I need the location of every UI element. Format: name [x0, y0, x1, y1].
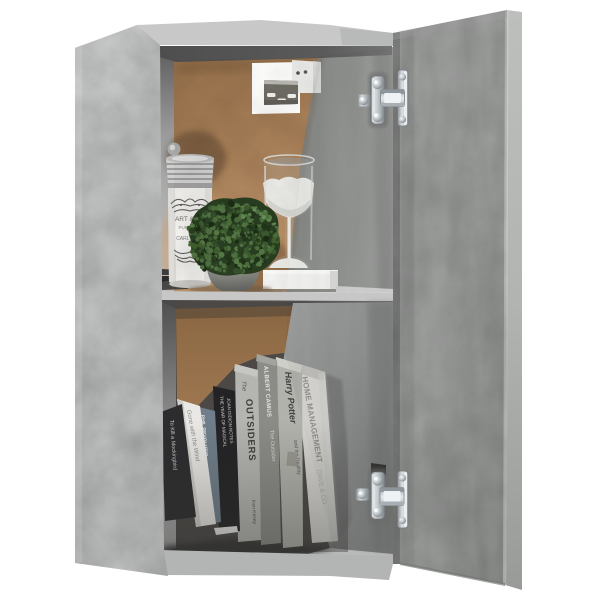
- svg-text:The: The: [240, 381, 247, 392]
